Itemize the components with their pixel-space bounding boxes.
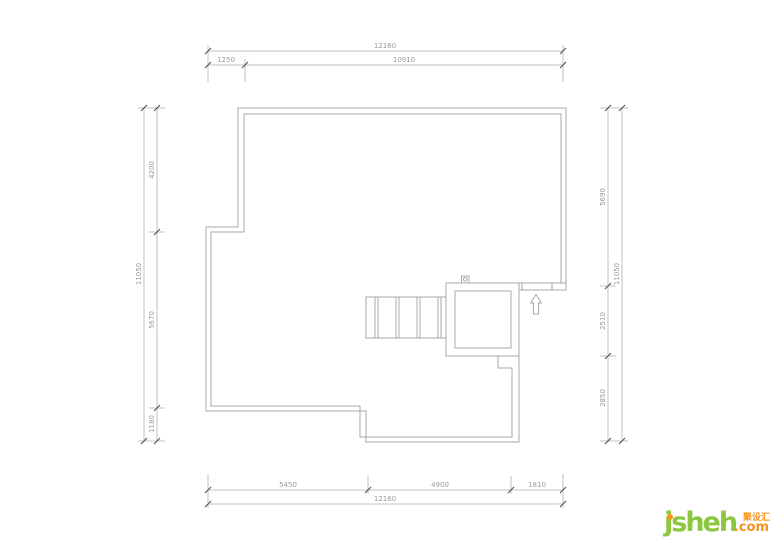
dim-label-bottom-seg3: 1810 xyxy=(528,481,546,489)
dimension-ticks xyxy=(141,48,625,507)
door-symbol-icon xyxy=(462,276,470,283)
dim-label-left-total: 11050 xyxy=(135,263,143,285)
dim-label-top-seg2: 10910 xyxy=(393,56,415,64)
jsheh-logo[interactable]: jsheh 聚设汇 .com xyxy=(664,505,770,544)
dim-label-left-seg3: 1180 xyxy=(148,415,156,433)
floor-plan-page: 12160 1250 10910 5450 4900 1810 12160 11… xyxy=(0,0,770,544)
entry-door-ticks xyxy=(522,283,552,290)
dim-label-left-seg2: 5670 xyxy=(148,311,156,329)
inner-wall xyxy=(211,114,561,437)
stair-core-room-inner xyxy=(455,291,511,348)
dim-label-bottom-seg1: 5450 xyxy=(279,481,297,489)
entry-arrow-icon xyxy=(531,295,542,315)
dim-label-bottom-total: 12160 xyxy=(374,495,396,503)
logo-j-dot-icon xyxy=(667,514,673,520)
logo-brand-text: jsheh xyxy=(664,505,736,541)
stair-treads xyxy=(375,297,441,338)
dim-label-bottom-seg2: 4900 xyxy=(431,481,449,489)
dim-label-top-seg1: 1250 xyxy=(217,56,235,64)
stair-core-room xyxy=(446,283,566,442)
dim-label-right-total: 11050 xyxy=(613,263,621,285)
dim-label-right-seg2: 2510 xyxy=(599,312,607,330)
dim-label-right-seg3: 2850 xyxy=(599,389,607,407)
floor-plan-drawing: 12160 1250 10910 5450 4900 1810 12160 11… xyxy=(0,0,770,544)
dimension-labels: 12160 1250 10910 5450 4900 1810 12160 11… xyxy=(135,42,621,503)
logo-domain-suffix: .com xyxy=(734,520,769,535)
dim-label-top-total: 12160 xyxy=(374,42,396,50)
dim-label-left-seg1: 4200 xyxy=(148,161,156,179)
dim-label-right-seg1: 5690 xyxy=(599,188,607,206)
walls xyxy=(206,108,566,442)
